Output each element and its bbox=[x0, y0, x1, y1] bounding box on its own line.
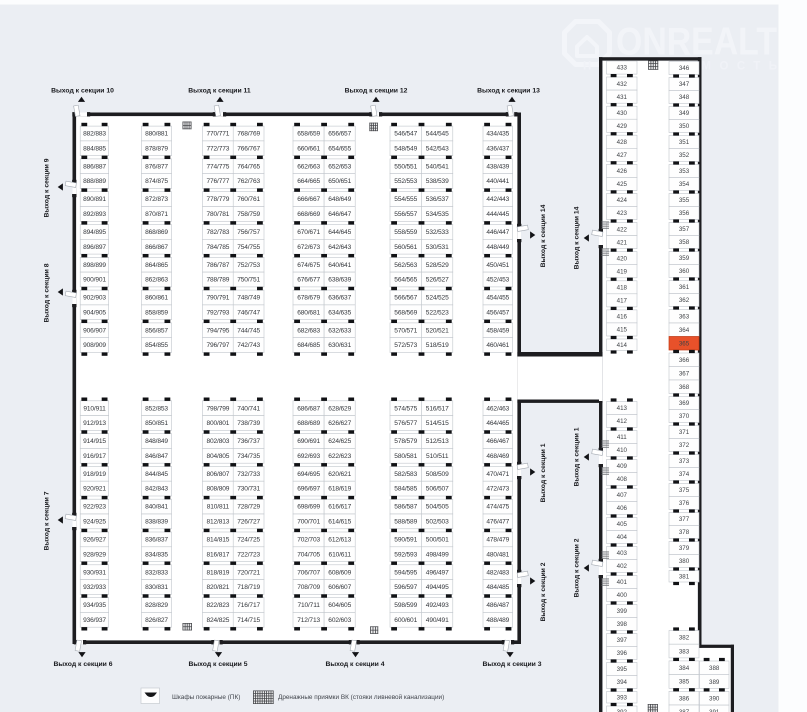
svg-text:372: 372 bbox=[679, 442, 690, 449]
svg-text:401: 401 bbox=[617, 579, 628, 586]
svg-text:612/613: 612/613 bbox=[328, 537, 351, 544]
svg-text:370: 370 bbox=[679, 413, 690, 420]
svg-text:788/789: 788/789 bbox=[207, 277, 230, 284]
svg-text:834/835: 834/835 bbox=[145, 551, 168, 558]
svg-text:724/725: 724/725 bbox=[237, 537, 260, 544]
svg-text:Выход к секции 14: Выход к секции 14 bbox=[540, 204, 547, 267]
svg-text:782/783: 782/783 bbox=[207, 229, 230, 236]
svg-text:864/865: 864/865 bbox=[145, 262, 168, 269]
svg-text:430: 430 bbox=[617, 110, 628, 117]
svg-text:566/567: 566/567 bbox=[394, 295, 417, 302]
svg-text:698/699: 698/699 bbox=[297, 504, 320, 511]
svg-text:720/721: 720/721 bbox=[237, 569, 260, 576]
svg-text:534/535: 534/535 bbox=[426, 211, 449, 218]
svg-text:357: 357 bbox=[679, 226, 690, 233]
svg-text:358: 358 bbox=[679, 239, 690, 246]
svg-text:544/545: 544/545 bbox=[426, 131, 449, 138]
svg-text:860/861: 860/861 bbox=[145, 295, 168, 302]
svg-text:359: 359 bbox=[679, 255, 690, 262]
svg-text:636/637: 636/637 bbox=[328, 295, 351, 302]
svg-text:514/515: 514/515 bbox=[426, 420, 449, 427]
svg-text:432: 432 bbox=[617, 81, 628, 88]
svg-text:802/803: 802/803 bbox=[207, 438, 230, 445]
svg-text:592/593: 592/593 bbox=[394, 551, 417, 558]
svg-text:930/931: 930/931 bbox=[83, 569, 106, 576]
svg-text:522/523: 522/523 bbox=[426, 309, 449, 316]
svg-text:411: 411 bbox=[617, 434, 627, 441]
svg-text:452/453: 452/453 bbox=[486, 277, 509, 284]
svg-text:680/681: 680/681 bbox=[297, 309, 320, 316]
svg-text:702/703: 702/703 bbox=[297, 537, 320, 544]
svg-text:Шкафы пожарные (ПК): Шкафы пожарные (ПК) bbox=[172, 694, 240, 701]
svg-text:540/541: 540/541 bbox=[426, 163, 449, 170]
svg-text:738/739: 738/739 bbox=[237, 420, 260, 427]
svg-text:652/653: 652/653 bbox=[328, 163, 351, 170]
svg-text:374: 374 bbox=[679, 471, 690, 478]
svg-text:800/801: 800/801 bbox=[207, 420, 230, 427]
svg-text:404: 404 bbox=[617, 534, 628, 541]
svg-text:496/497: 496/497 bbox=[426, 569, 449, 576]
svg-text:Выход к секции 5: Выход к секции 5 bbox=[188, 661, 247, 668]
svg-text:468/469: 468/469 bbox=[486, 453, 509, 460]
svg-text:476/477: 476/477 bbox=[486, 519, 509, 526]
svg-text:578/579: 578/579 bbox=[394, 438, 417, 445]
svg-text:666/667: 666/667 bbox=[297, 196, 320, 203]
svg-text:560/561: 560/561 bbox=[394, 244, 417, 251]
svg-text:848/849: 848/849 bbox=[145, 438, 168, 445]
svg-text:870/871: 870/871 bbox=[145, 211, 168, 218]
svg-text:678/679: 678/679 bbox=[297, 295, 320, 302]
svg-text:558/559: 558/559 bbox=[394, 229, 417, 236]
svg-text:616/617: 616/617 bbox=[328, 504, 351, 511]
svg-text:700/701: 700/701 bbox=[297, 519, 320, 526]
svg-text:Выход к секции 11: Выход к секции 11 bbox=[188, 88, 251, 95]
svg-text:792/793: 792/793 bbox=[207, 309, 230, 316]
svg-text:754/755: 754/755 bbox=[237, 244, 260, 251]
svg-text:428: 428 bbox=[617, 139, 628, 146]
svg-text:352: 352 bbox=[679, 152, 690, 159]
svg-text:910/911: 910/911 bbox=[83, 405, 106, 412]
svg-text:600/601: 600/601 bbox=[394, 617, 417, 624]
svg-text:818/819: 818/819 bbox=[207, 569, 230, 576]
svg-text:706/707: 706/707 bbox=[297, 569, 320, 576]
svg-text:446/447: 446/447 bbox=[486, 229, 509, 236]
svg-text:502/503: 502/503 bbox=[426, 519, 449, 526]
svg-text:379: 379 bbox=[679, 545, 690, 552]
svg-text:798/799: 798/799 bbox=[207, 405, 230, 412]
svg-text:624/625: 624/625 bbox=[328, 438, 351, 445]
svg-text:478/479: 478/479 bbox=[486, 537, 509, 544]
svg-text:606/607: 606/607 bbox=[328, 584, 351, 591]
svg-text:450/451: 450/451 bbox=[486, 262, 509, 269]
svg-text:628/629: 628/629 bbox=[328, 405, 351, 412]
svg-text:431: 431 bbox=[617, 94, 628, 101]
svg-text:926/927: 926/927 bbox=[83, 537, 106, 544]
svg-text:642/643: 642/643 bbox=[328, 244, 351, 251]
svg-text:892/893: 892/893 bbox=[83, 211, 106, 218]
svg-text:894/895: 894/895 bbox=[83, 229, 106, 236]
svg-text:582/583: 582/583 bbox=[394, 471, 417, 478]
svg-text:417: 417 bbox=[617, 298, 628, 305]
svg-text:838/839: 838/839 bbox=[145, 519, 168, 526]
svg-text:500/501: 500/501 bbox=[426, 537, 449, 544]
svg-text:442/443: 442/443 bbox=[486, 196, 509, 203]
svg-text:375: 375 bbox=[679, 487, 690, 494]
svg-text:908/909: 908/909 bbox=[83, 342, 106, 349]
svg-text:672/673: 672/673 bbox=[297, 244, 320, 251]
svg-text:368: 368 bbox=[679, 384, 690, 391]
svg-text:882/883: 882/883 bbox=[83, 131, 106, 138]
svg-text:488/489: 488/489 bbox=[486, 617, 509, 624]
svg-text:425: 425 bbox=[617, 181, 628, 188]
svg-text:407: 407 bbox=[617, 492, 628, 499]
svg-text:770/771: 770/771 bbox=[207, 131, 230, 138]
svg-text:932/933: 932/933 bbox=[83, 584, 106, 591]
svg-text:365: 365 bbox=[679, 340, 690, 347]
svg-text:363: 363 bbox=[679, 313, 690, 320]
svg-text:532/533: 532/533 bbox=[426, 229, 449, 236]
svg-text:806/807: 806/807 bbox=[207, 471, 230, 478]
svg-text:423: 423 bbox=[617, 210, 628, 217]
svg-text:658/659: 658/659 bbox=[297, 131, 320, 138]
svg-text:608/609: 608/609 bbox=[328, 569, 351, 576]
svg-text:520/521: 520/521 bbox=[426, 327, 449, 334]
svg-text:786/787: 786/787 bbox=[207, 262, 230, 269]
svg-text:836/837: 836/837 bbox=[145, 537, 168, 544]
svg-text:448/449: 448/449 bbox=[486, 244, 509, 251]
svg-text:784/785: 784/785 bbox=[207, 244, 230, 251]
svg-text:386: 386 bbox=[679, 695, 690, 702]
svg-text:814/815: 814/815 bbox=[207, 537, 230, 544]
svg-text:546/547: 546/547 bbox=[394, 131, 417, 138]
svg-text:854/855: 854/855 bbox=[145, 342, 168, 349]
svg-text:928/929: 928/929 bbox=[83, 551, 106, 558]
svg-text:382: 382 bbox=[679, 635, 690, 642]
svg-text:Выход к секции 1: Выход к секции 1 bbox=[540, 443, 547, 502]
svg-text:742/743: 742/743 bbox=[237, 342, 260, 349]
svg-text:383: 383 bbox=[679, 648, 690, 655]
svg-text:403: 403 bbox=[617, 550, 628, 557]
svg-text:922/923: 922/923 bbox=[83, 504, 106, 511]
svg-text:406: 406 bbox=[617, 505, 628, 512]
svg-text:630/631: 630/631 bbox=[328, 342, 351, 349]
svg-text:914/915: 914/915 bbox=[83, 438, 106, 445]
svg-text:646/647: 646/647 bbox=[328, 211, 351, 218]
svg-text:351: 351 bbox=[679, 139, 690, 146]
svg-text:Выход к секции 7: Выход к секции 7 bbox=[44, 491, 51, 550]
svg-text:796/797: 796/797 bbox=[207, 342, 230, 349]
svg-text:654/655: 654/655 bbox=[328, 145, 351, 152]
svg-text:526/527: 526/527 bbox=[426, 277, 449, 284]
svg-text:538/539: 538/539 bbox=[426, 178, 449, 185]
svg-text:350: 350 bbox=[679, 123, 690, 130]
svg-text:504/505: 504/505 bbox=[426, 504, 449, 511]
svg-text:554/555: 554/555 bbox=[394, 196, 417, 203]
svg-text:426: 426 bbox=[617, 168, 628, 175]
svg-text:433: 433 bbox=[617, 65, 628, 72]
svg-text:Выход к секции 9: Выход к секции 9 bbox=[44, 158, 51, 217]
svg-text:564/565: 564/565 bbox=[394, 277, 417, 284]
svg-text:596/597: 596/597 bbox=[394, 584, 417, 591]
svg-text:408: 408 bbox=[617, 476, 628, 483]
svg-text:414: 414 bbox=[617, 342, 628, 349]
svg-text:494/495: 494/495 bbox=[426, 584, 449, 591]
svg-text:440/441: 440/441 bbox=[486, 178, 509, 185]
svg-text:712/713: 712/713 bbox=[297, 617, 320, 624]
svg-text:828/829: 828/829 bbox=[145, 602, 168, 609]
svg-text:686/687: 686/687 bbox=[297, 405, 320, 412]
svg-text:361: 361 bbox=[679, 284, 690, 291]
svg-text:728/729: 728/729 bbox=[237, 504, 260, 511]
svg-text:462/463: 462/463 bbox=[486, 405, 509, 412]
svg-text:868/869: 868/869 bbox=[145, 229, 168, 236]
svg-text:360: 360 bbox=[679, 268, 690, 275]
svg-text:366: 366 bbox=[679, 357, 690, 364]
svg-text:576/577: 576/577 bbox=[394, 420, 417, 427]
svg-text:Выход к секции 2: Выход к секции 2 bbox=[540, 562, 547, 621]
svg-text:416: 416 bbox=[617, 314, 628, 321]
svg-text:662/663: 662/663 bbox=[297, 163, 320, 170]
svg-text:586/587: 586/587 bbox=[394, 504, 417, 511]
svg-text:852/853: 852/853 bbox=[145, 405, 168, 412]
svg-text:349: 349 bbox=[679, 110, 690, 117]
svg-text:380: 380 bbox=[679, 558, 690, 565]
svg-text:614/615: 614/615 bbox=[328, 519, 351, 526]
svg-text:820/821: 820/821 bbox=[207, 584, 230, 591]
svg-text:354: 354 bbox=[679, 181, 690, 188]
svg-text:434/435: 434/435 bbox=[486, 131, 509, 138]
svg-text:934/935: 934/935 bbox=[83, 602, 106, 609]
svg-text:410: 410 bbox=[617, 447, 628, 454]
svg-text:670/671: 670/671 bbox=[297, 229, 320, 236]
svg-text:730/731: 730/731 bbox=[237, 486, 260, 493]
svg-text:598/599: 598/599 bbox=[394, 602, 417, 609]
svg-text:Выход к секции 3: Выход к секции 3 bbox=[482, 661, 541, 668]
svg-text:415: 415 bbox=[617, 327, 628, 334]
svg-text:722/723: 722/723 bbox=[237, 551, 260, 558]
svg-text:830/831: 830/831 bbox=[145, 584, 168, 591]
svg-text:808/809: 808/809 bbox=[207, 486, 230, 493]
svg-text:638/639: 638/639 bbox=[328, 277, 351, 284]
svg-text:682/683: 682/683 bbox=[297, 327, 320, 334]
svg-text:810/811: 810/811 bbox=[207, 504, 230, 511]
svg-text:760/761: 760/761 bbox=[237, 196, 260, 203]
svg-text:758/759: 758/759 bbox=[237, 211, 260, 218]
svg-text:381: 381 bbox=[679, 574, 690, 581]
svg-text:472/473: 472/473 bbox=[486, 486, 509, 493]
svg-text:668/669: 668/669 bbox=[297, 211, 320, 218]
svg-text:454/455: 454/455 bbox=[486, 295, 509, 302]
svg-text:594/595: 594/595 bbox=[394, 569, 417, 576]
svg-text:429: 429 bbox=[617, 123, 628, 130]
svg-text:376: 376 bbox=[679, 500, 690, 507]
svg-text:650/651: 650/651 bbox=[328, 178, 351, 185]
svg-text:656/657: 656/657 bbox=[328, 131, 351, 138]
svg-text:512/513: 512/513 bbox=[426, 438, 449, 445]
svg-text:896/897: 896/897 bbox=[83, 244, 106, 251]
svg-text:890/891: 890/891 bbox=[83, 196, 106, 203]
svg-text:398: 398 bbox=[617, 621, 628, 628]
svg-text:393: 393 bbox=[617, 695, 628, 702]
svg-text:874/875: 874/875 bbox=[145, 178, 168, 185]
svg-text:409: 409 bbox=[617, 463, 628, 470]
svg-text:388: 388 bbox=[709, 665, 720, 672]
svg-text:850/851: 850/851 bbox=[145, 420, 168, 427]
svg-text:888/889: 888/889 bbox=[83, 178, 106, 185]
svg-text:694/695: 694/695 bbox=[297, 471, 320, 478]
svg-text:676/677: 676/677 bbox=[297, 277, 320, 284]
svg-text:590/591: 590/591 bbox=[394, 537, 417, 544]
svg-text:474/475: 474/475 bbox=[486, 504, 509, 511]
svg-text:726/727: 726/727 bbox=[237, 519, 260, 526]
svg-text:748/749: 748/749 bbox=[237, 295, 260, 302]
svg-text:389: 389 bbox=[709, 679, 720, 686]
svg-text:774/775: 774/775 bbox=[207, 163, 230, 170]
svg-text:604/605: 604/605 bbox=[328, 602, 351, 609]
svg-text:486/487: 486/487 bbox=[486, 602, 509, 609]
svg-text:778/779: 778/779 bbox=[207, 196, 230, 203]
svg-text:Выход к секции 12: Выход к секции 12 bbox=[345, 88, 408, 95]
svg-text:348: 348 bbox=[679, 94, 690, 101]
svg-text:460/461: 460/461 bbox=[486, 342, 509, 349]
svg-text:464/465: 464/465 bbox=[486, 420, 509, 427]
svg-text:822/823: 822/823 bbox=[207, 602, 230, 609]
svg-text:420: 420 bbox=[617, 255, 628, 262]
svg-text:402: 402 bbox=[617, 563, 628, 570]
svg-text:492/493: 492/493 bbox=[426, 602, 449, 609]
svg-text:634/635: 634/635 bbox=[328, 309, 351, 316]
svg-text:371: 371 bbox=[679, 429, 690, 436]
svg-text:718/719: 718/719 bbox=[237, 584, 260, 591]
svg-text:904/905: 904/905 bbox=[83, 309, 106, 316]
svg-text:355: 355 bbox=[679, 197, 690, 204]
svg-text:776/777: 776/777 bbox=[207, 178, 230, 185]
svg-text:734/735: 734/735 bbox=[237, 453, 260, 460]
svg-text:620/621: 620/621 bbox=[328, 471, 351, 478]
svg-text:752/753: 752/753 bbox=[237, 262, 260, 269]
svg-text:377: 377 bbox=[679, 516, 690, 523]
svg-text:413: 413 bbox=[617, 405, 628, 412]
svg-text:924/925: 924/925 bbox=[83, 519, 106, 526]
svg-text:906/907: 906/907 bbox=[83, 327, 106, 334]
svg-text:528/529: 528/529 bbox=[426, 262, 449, 269]
svg-text:490/491: 490/491 bbox=[426, 617, 449, 624]
svg-text:886/887: 886/887 bbox=[83, 163, 106, 170]
svg-text:790/791: 790/791 bbox=[207, 295, 230, 302]
svg-text:570/571: 570/571 bbox=[394, 327, 417, 334]
svg-text:556/557: 556/557 bbox=[394, 211, 417, 218]
svg-text:405: 405 bbox=[617, 521, 628, 528]
svg-text:866/867: 866/867 bbox=[145, 244, 168, 251]
svg-text:436/437: 436/437 bbox=[486, 145, 509, 152]
svg-text:840/841: 840/841 bbox=[145, 504, 168, 511]
svg-text:364: 364 bbox=[679, 327, 690, 334]
svg-text:626/627: 626/627 bbox=[328, 420, 351, 427]
svg-text:878/879: 878/879 bbox=[145, 145, 168, 152]
svg-text:622/623: 622/623 bbox=[328, 453, 351, 460]
svg-text:664/665: 664/665 bbox=[297, 178, 320, 185]
svg-text:900/901: 900/901 bbox=[83, 277, 106, 284]
svg-text:424: 424 bbox=[617, 197, 628, 204]
svg-text:632/633: 632/633 bbox=[328, 327, 351, 334]
svg-text:346: 346 bbox=[679, 65, 690, 72]
svg-text:764/765: 764/765 bbox=[237, 163, 260, 170]
svg-text:480/481: 480/481 bbox=[486, 551, 509, 558]
svg-text:482/483: 482/483 bbox=[486, 569, 509, 576]
svg-text:367: 367 bbox=[679, 370, 690, 377]
svg-text:692/693: 692/693 bbox=[297, 453, 320, 460]
svg-text:Дренажные приямки ВК (стояки л: Дренажные приямки ВК (стояки ливневой ка… bbox=[278, 693, 444, 701]
svg-text:768/769: 768/769 bbox=[237, 131, 260, 138]
svg-text:918/919: 918/919 bbox=[83, 471, 106, 478]
svg-text:542/543: 542/543 bbox=[426, 145, 449, 152]
svg-text:510/511: 510/511 bbox=[426, 453, 449, 460]
svg-text:580/581: 580/581 bbox=[394, 453, 417, 460]
svg-text:470/471: 470/471 bbox=[486, 471, 509, 478]
svg-text:Выход к секции 8: Выход к секции 8 bbox=[44, 263, 51, 322]
svg-text:506/507: 506/507 bbox=[426, 486, 449, 493]
svg-text:740/741: 740/741 bbox=[237, 405, 260, 412]
svg-text:508/509: 508/509 bbox=[426, 471, 449, 478]
svg-text:418: 418 bbox=[617, 285, 628, 292]
svg-text:880/881: 880/881 bbox=[145, 131, 168, 138]
svg-text:397: 397 bbox=[617, 637, 628, 644]
svg-text:385: 385 bbox=[679, 679, 690, 686]
svg-text:390: 390 bbox=[709, 696, 720, 703]
svg-text:574/575: 574/575 bbox=[394, 405, 417, 412]
svg-text:399: 399 bbox=[617, 608, 628, 615]
svg-text:518/519: 518/519 bbox=[426, 342, 449, 349]
svg-text:844/845: 844/845 bbox=[145, 471, 168, 478]
svg-text:876/877: 876/877 bbox=[145, 163, 168, 170]
svg-text:780/781: 780/781 bbox=[207, 211, 230, 218]
svg-text:Выход к секции 10: Выход к секции 10 bbox=[51, 88, 114, 95]
svg-text:898/899: 898/899 bbox=[83, 262, 106, 269]
svg-text:826/827: 826/827 bbox=[145, 617, 168, 624]
svg-text:369: 369 bbox=[679, 400, 690, 407]
svg-text:Выход к секции 1: Выход к секции 1 bbox=[574, 427, 581, 486]
svg-text:912/913: 912/913 bbox=[83, 420, 106, 427]
svg-text:762/763: 762/763 bbox=[237, 178, 260, 185]
svg-text:736/737: 736/737 bbox=[237, 438, 260, 445]
svg-text:394: 394 bbox=[617, 679, 628, 686]
svg-text:858/859: 858/859 bbox=[145, 309, 168, 316]
svg-text:384: 384 bbox=[679, 665, 690, 672]
svg-text:458/459: 458/459 bbox=[486, 327, 509, 334]
svg-text:Выход к секции 6: Выход к секции 6 bbox=[53, 661, 112, 668]
svg-text:Выход к секции 4: Выход к секции 4 bbox=[325, 661, 384, 668]
svg-text:696/697: 696/697 bbox=[297, 486, 320, 493]
svg-text:572/573: 572/573 bbox=[394, 342, 417, 349]
svg-text:422: 422 bbox=[617, 226, 628, 233]
svg-text:750/751: 750/751 bbox=[237, 277, 260, 284]
svg-text:548/549: 548/549 bbox=[394, 145, 417, 152]
svg-text:427: 427 bbox=[617, 152, 628, 159]
svg-text:550/551: 550/551 bbox=[394, 163, 417, 170]
svg-text:688/689: 688/689 bbox=[297, 420, 320, 427]
svg-text:684/685: 684/685 bbox=[297, 342, 320, 349]
svg-text:498/499: 498/499 bbox=[426, 551, 449, 558]
svg-text:584/585: 584/585 bbox=[394, 486, 417, 493]
svg-text:756/757: 756/757 bbox=[237, 229, 260, 236]
svg-text:516/517: 516/517 bbox=[426, 405, 449, 412]
svg-text:Выход к секции 14: Выход к секции 14 bbox=[574, 206, 581, 269]
svg-text:772/773: 772/773 bbox=[207, 145, 230, 152]
svg-text:794/795: 794/795 bbox=[207, 327, 230, 334]
svg-text:347: 347 bbox=[679, 81, 690, 88]
svg-text:856/857: 856/857 bbox=[145, 327, 168, 334]
svg-text:832/833: 832/833 bbox=[145, 569, 168, 576]
